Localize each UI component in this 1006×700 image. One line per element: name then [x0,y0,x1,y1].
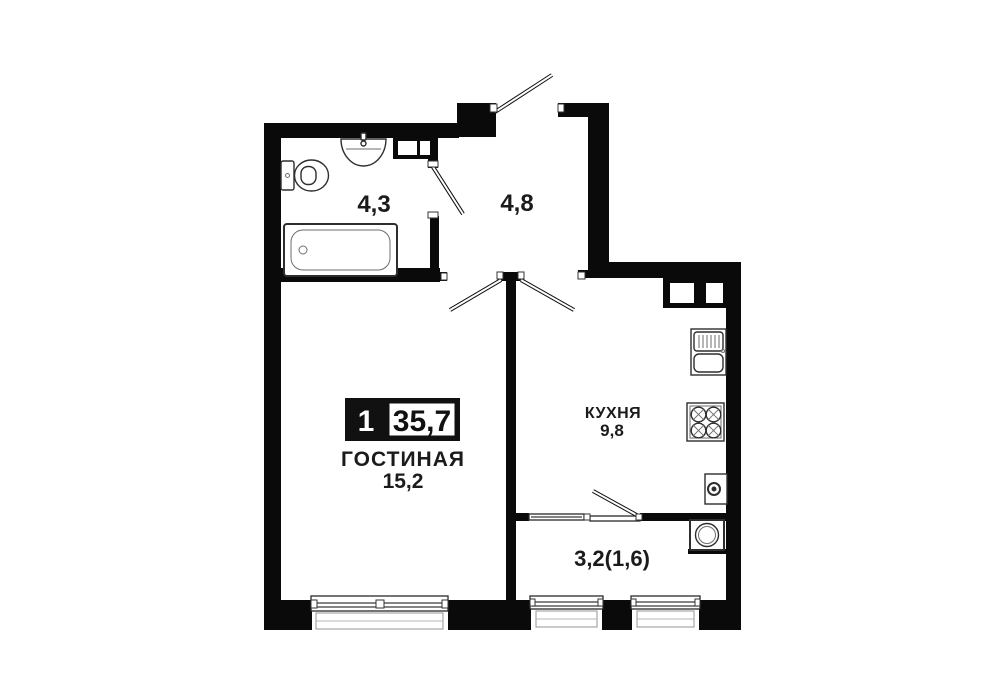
door-jamb-cap [636,514,642,520]
door-jamb-cap [497,272,503,279]
balcony-door-threshold [590,516,640,521]
kitchen-sink [691,329,726,375]
toilet [281,160,329,191]
window-cap [530,599,535,606]
living-room-area-label: 15,2 [383,470,424,493]
wall-bottom-left [264,600,312,630]
window-cap [695,599,700,606]
wall-kitchen-top [588,262,740,278]
sink-drain [361,141,366,146]
door-jamb-cap [428,161,438,167]
water-heater [705,474,727,504]
window-cap [598,599,603,606]
washing-machine [690,520,724,550]
wall-balcony-partition-left [516,513,529,521]
living-room-name-label: ГОСТИНАЯ [341,448,465,471]
window-cap [442,600,448,608]
wall-bottom-right [699,600,741,630]
vent-duct [420,141,430,155]
bathroom-area-label: 4,3 [357,191,390,218]
vent-duct [706,283,723,303]
bathtub [284,224,397,276]
door-jamb-cap [584,514,590,520]
floor-plan: 4,3 4,8 ГОСТИНАЯ 15,2 КУХНЯ 9,8 3,2(1,6)… [0,0,1006,700]
door-jamb-cap [558,104,564,112]
wall-living-kitchen-divider [506,281,516,600]
window-cap [376,600,384,608]
kitchen-sink-counter [691,329,726,375]
wall-hallway-right [588,103,609,278]
wall-bottom-center [448,600,531,630]
balcony-window-1 [530,596,603,627]
door-jamb-cap [428,212,438,218]
kitchen-area-label: 9,8 [600,421,624,440]
area-badge: 1 35,7 [345,398,460,441]
badge-total-area: 35,7 [393,405,451,438]
bathtub-rim [284,224,397,276]
door-jamb-cap [578,272,585,279]
hallway-area-label: 4,8 [500,190,533,217]
vent-duct [398,141,417,155]
sink-faucet [361,133,366,140]
wall-notch [281,138,295,152]
toilet-cistern [281,161,294,190]
door-jamb-cap [518,272,524,279]
window-cap [311,600,317,608]
vent-duct [670,283,694,303]
wall-exterior-left [264,123,281,630]
wall-bathroom-right-lower [430,216,439,268]
toilet-bowl [295,160,329,191]
floor-plan-page: 4,3 4,8 ГОСТИНАЯ 15,2 КУХНЯ 9,8 3,2(1,6)… [0,0,1006,700]
balcony-window-2 [631,596,700,627]
living-room-window [311,596,448,629]
wall-bottom-balcony-mid [602,600,632,630]
wall-exterior-right [726,262,741,630]
stove [687,403,724,441]
balcony-area-label: 3,2(1,6) [574,546,650,571]
door-jamb-cap [441,273,447,280]
badge-room-count: 1 [358,405,375,438]
door-jamb-cap [490,104,497,112]
kitchen-name-label: КУХНЯ [585,405,641,422]
water-heater-dot [712,487,716,491]
window-cap [631,599,636,606]
